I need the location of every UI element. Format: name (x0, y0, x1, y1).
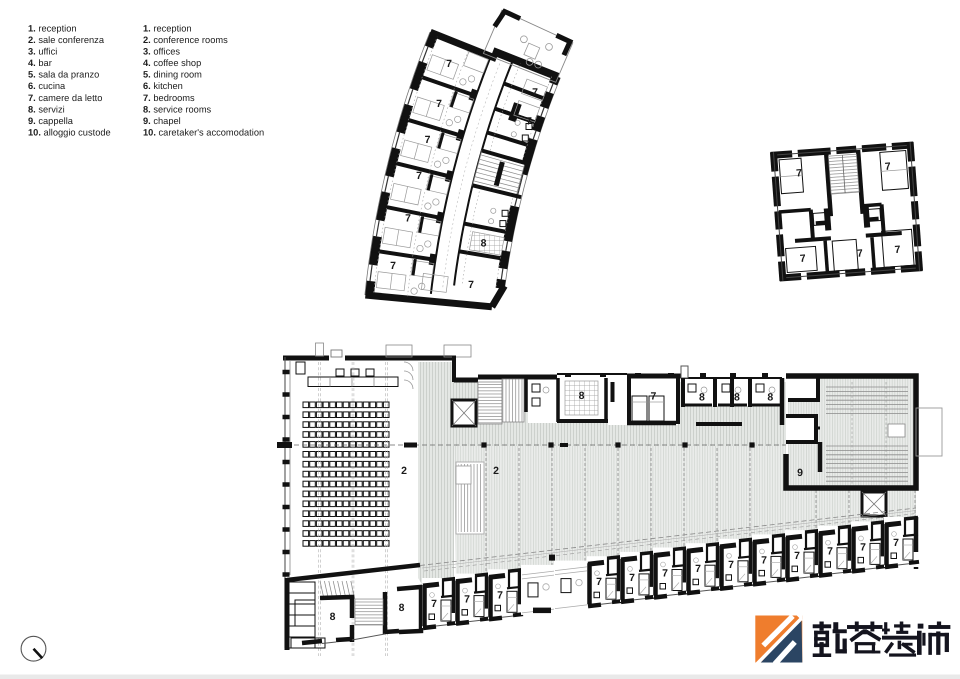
svg-text:7: 7 (526, 116, 532, 128)
svg-text:3. uffici: 3. uffici (28, 47, 57, 57)
svg-text:7: 7 (532, 87, 538, 99)
svg-text:10. alloggio custode: 10. alloggio custode (28, 127, 111, 137)
svg-text:8: 8 (481, 238, 487, 250)
svg-text:7: 7 (425, 134, 431, 146)
svg-text:2: 2 (493, 465, 499, 477)
svg-text:7: 7 (857, 247, 864, 259)
svg-text:8: 8 (734, 392, 740, 404)
svg-text:8: 8 (399, 602, 405, 614)
svg-text:7: 7 (728, 559, 734, 571)
svg-text:7: 7 (405, 213, 411, 225)
svg-text:7: 7 (390, 260, 396, 272)
svg-text:8. service rooms: 8. service rooms (143, 104, 212, 114)
svg-text:9. chapel: 9. chapel (143, 116, 181, 126)
svg-text:7: 7 (894, 244, 901, 256)
svg-text:4. coffee shop: 4. coffee shop (143, 58, 201, 68)
svg-text:9. cappella: 9. cappella (28, 116, 74, 126)
svg-text:7: 7 (468, 279, 474, 291)
svg-text:3. offices: 3. offices (143, 47, 180, 57)
svg-text:10. caretaker's accomodation: 10. caretaker's accomodation (143, 127, 264, 137)
svg-text:7: 7 (796, 167, 803, 179)
svg-text:9: 9 (797, 467, 803, 479)
svg-text:7: 7 (650, 391, 656, 403)
svg-text:7: 7 (893, 537, 899, 549)
svg-text:7: 7 (662, 568, 668, 580)
svg-text:7: 7 (860, 541, 866, 553)
svg-text:7: 7 (794, 550, 800, 562)
svg-text:1. reception: 1. reception (28, 24, 77, 34)
svg-text:7: 7 (464, 594, 470, 606)
svg-text:5. sala da pranzo: 5. sala da pranzo (28, 70, 99, 80)
svg-text:7: 7 (799, 253, 806, 265)
svg-text:7: 7 (436, 98, 442, 110)
svg-text:1. reception: 1. reception (143, 24, 192, 34)
svg-text:7: 7 (761, 554, 767, 566)
svg-text:2: 2 (401, 465, 407, 477)
svg-text:8: 8 (330, 611, 336, 623)
svg-text:4. bar: 4. bar (28, 58, 52, 68)
svg-text:7. camere da letto: 7. camere da letto (28, 93, 102, 103)
svg-text:8: 8 (767, 392, 773, 404)
svg-text:7: 7 (695, 563, 701, 575)
svg-text:7: 7 (446, 58, 452, 70)
svg-text:8. servizi: 8. servizi (28, 104, 65, 114)
svg-text:7: 7 (497, 589, 503, 601)
svg-text:2. conference rooms: 2. conference rooms (143, 35, 228, 45)
svg-text:7: 7 (827, 546, 833, 558)
svg-text:7. bedrooms: 7. bedrooms (143, 93, 195, 103)
svg-text:7: 7 (596, 576, 602, 588)
svg-text:7: 7 (629, 572, 635, 584)
svg-text:6. kitchen: 6. kitchen (143, 81, 183, 91)
svg-text:2. sale conferenza: 2. sale conferenza (28, 35, 105, 45)
svg-text:6. cucina: 6. cucina (28, 81, 66, 91)
svg-text:5. dining room: 5. dining room (143, 70, 202, 80)
svg-text:7: 7 (416, 170, 422, 182)
svg-text:8: 8 (579, 390, 585, 402)
svg-text:8: 8 (699, 392, 705, 404)
svg-text:7: 7 (884, 161, 891, 173)
svg-text:7: 7 (431, 598, 437, 610)
